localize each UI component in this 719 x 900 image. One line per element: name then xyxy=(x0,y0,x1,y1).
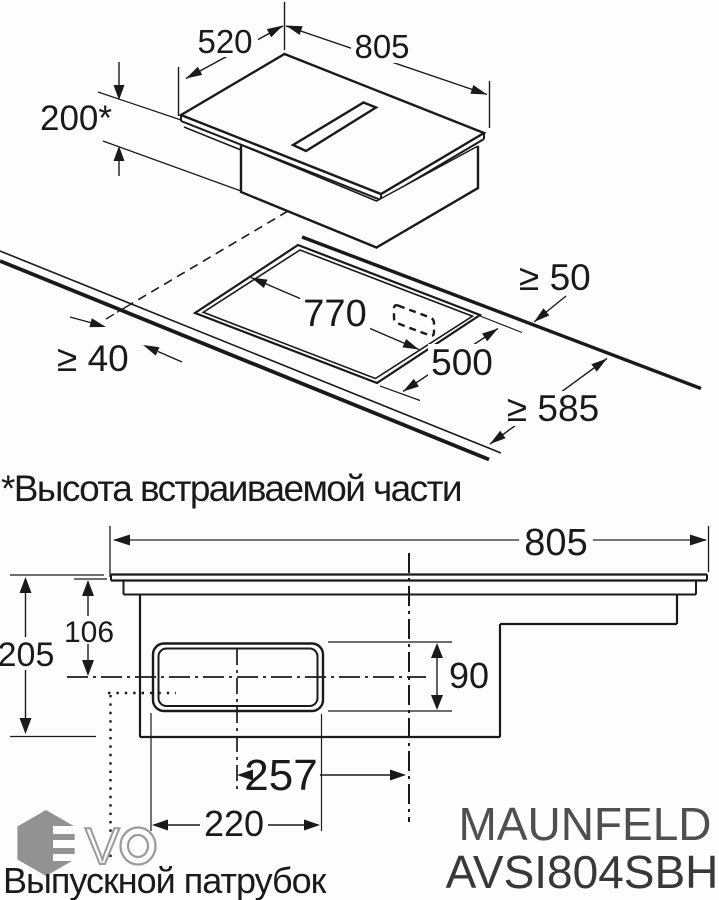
svg-text:205: 205 xyxy=(0,636,54,674)
svg-text:520: 520 xyxy=(197,23,252,60)
svg-text:805: 805 xyxy=(524,522,587,564)
svg-text:≥ 50: ≥ 50 xyxy=(519,257,591,298)
svg-text:805: 805 xyxy=(354,28,409,65)
svg-text:106: 106 xyxy=(64,616,114,649)
svg-text:AVSI804SBH: AVSI804SBH xyxy=(446,846,719,898)
svg-text:Выпускной патрубок: Выпускной патрубок xyxy=(3,860,327,900)
svg-text:200*: 200* xyxy=(40,99,112,138)
svg-text:*Высота встраиваемой части: *Высота встраиваемой части xyxy=(1,468,461,509)
svg-text:MAUNFELD: MAUNFELD xyxy=(458,798,711,850)
svg-text:90: 90 xyxy=(449,655,489,696)
svg-text:220: 220 xyxy=(204,803,264,844)
svg-text:770: 770 xyxy=(303,293,366,335)
svg-text:257: 257 xyxy=(244,751,317,800)
svg-text:≥ 40: ≥ 40 xyxy=(57,338,129,379)
svg-text:500: 500 xyxy=(431,342,493,383)
svg-text:≥ 585: ≥ 585 xyxy=(507,388,599,429)
